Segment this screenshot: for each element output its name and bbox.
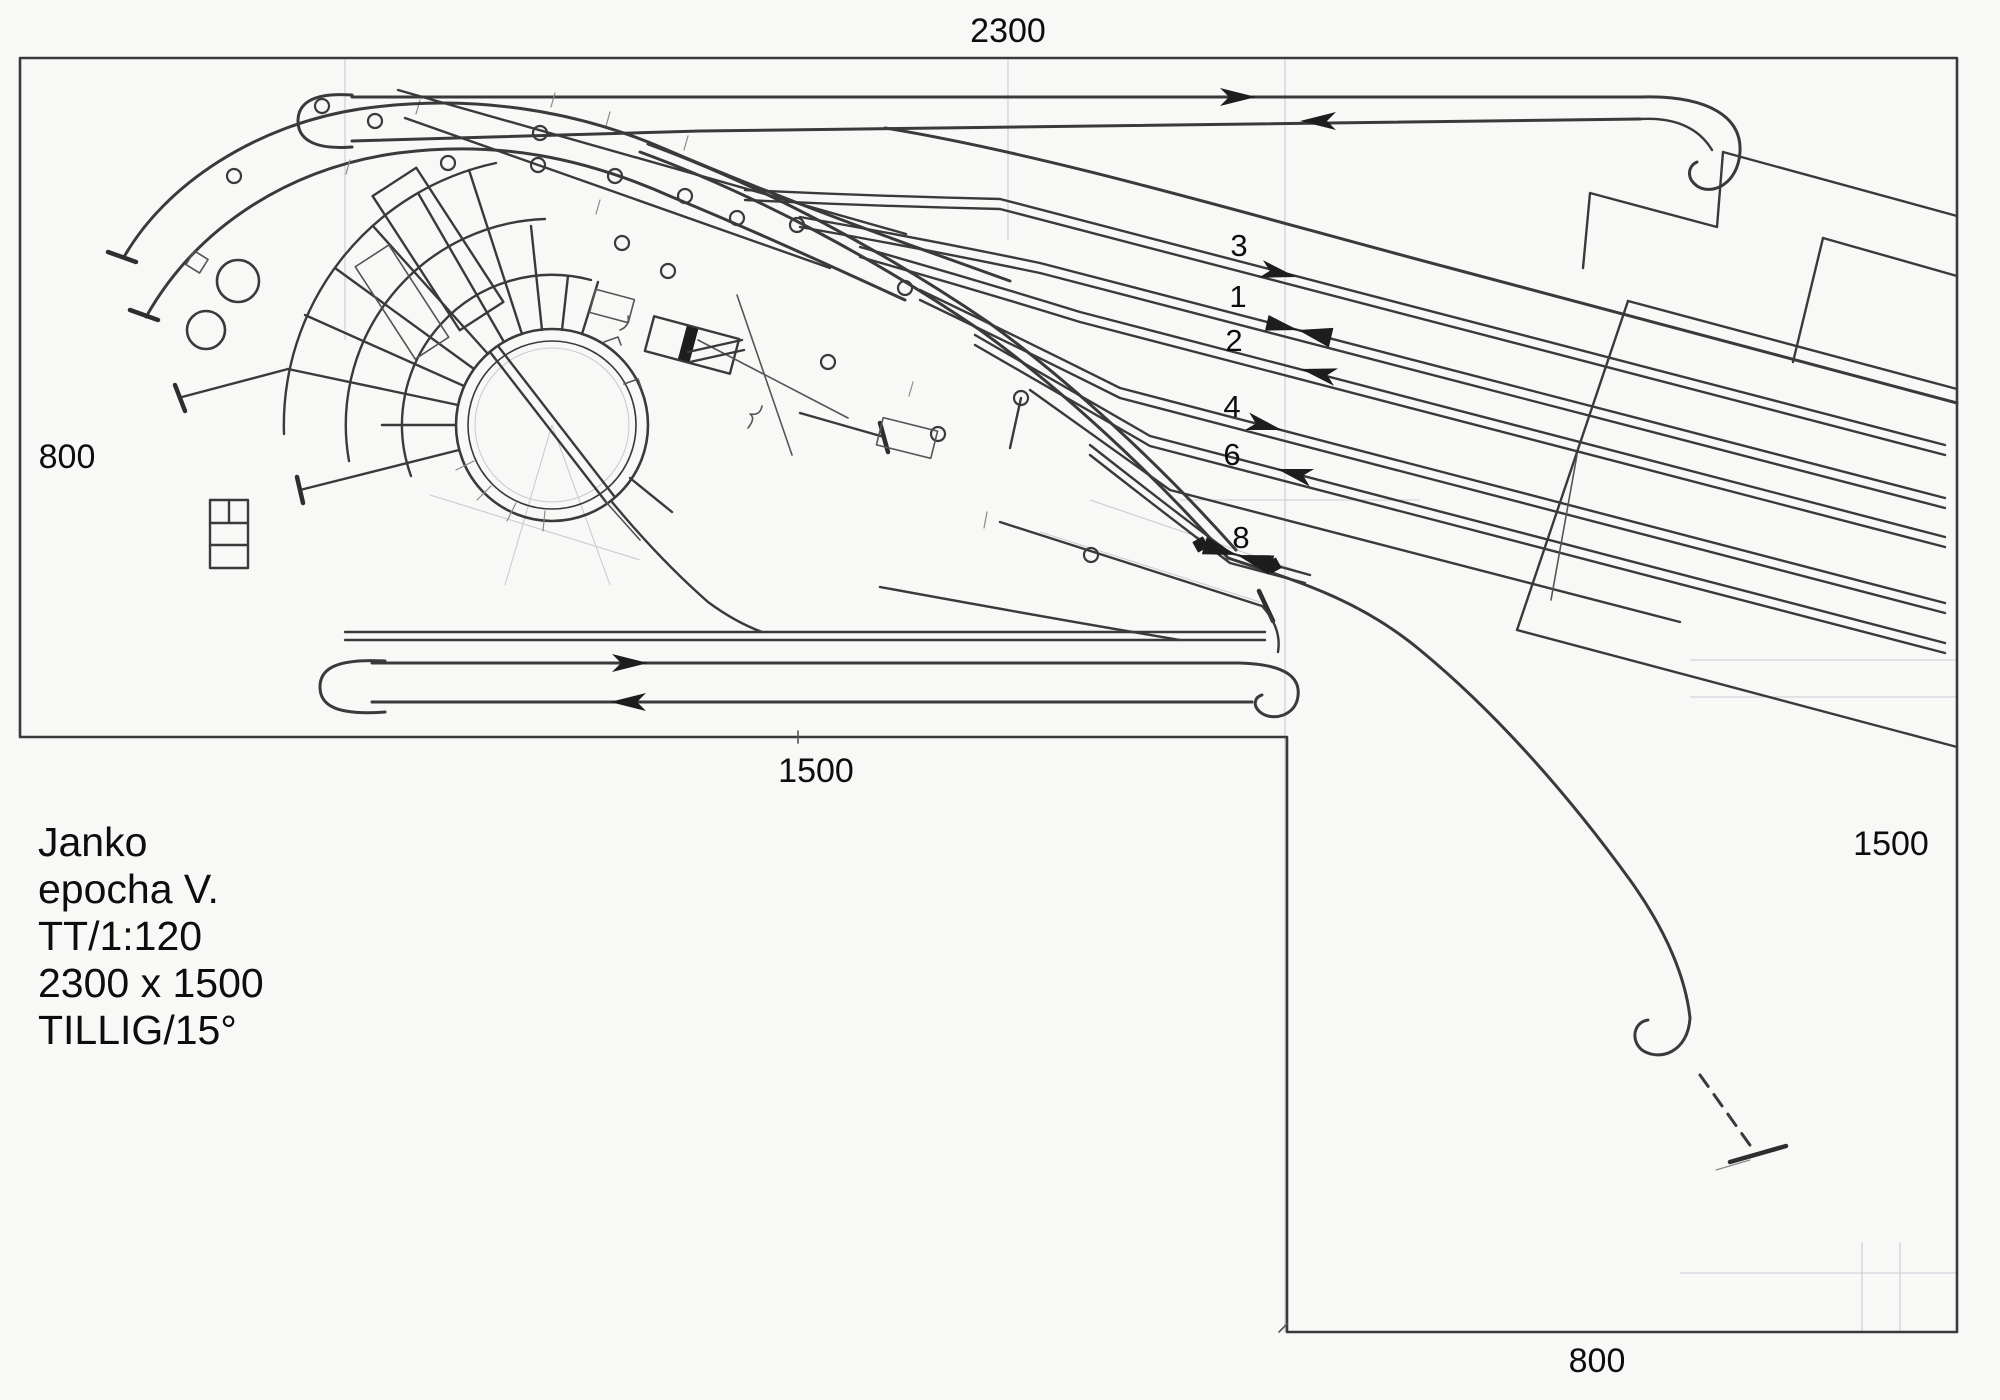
track-number-4: 4 <box>1223 389 1240 424</box>
dimension-bottom-outer: 800 <box>1569 1342 1626 1380</box>
hidden-track-dashed <box>1700 1075 1752 1148</box>
short-siding-with-buffer <box>800 413 888 452</box>
building-a-left-edge <box>1793 238 1823 362</box>
track-number-8: 8 <box>1232 520 1249 555</box>
track-end-bar <box>130 310 158 320</box>
title-line-epoch: epocha V. <box>38 866 219 912</box>
track-number-3: 3 <box>1230 228 1247 263</box>
turntable-to-station-link <box>612 502 762 632</box>
dimension-left: 800 <box>39 438 96 476</box>
track-plan-drawing: 2300 800 1500 1500 800 3 1 2 4 6 8 Janko… <box>0 0 2000 1400</box>
title-line-scale: TT/1:120 <box>38 913 202 959</box>
building-a-top-edge <box>1823 238 1957 276</box>
dimension-top: 2300 <box>970 12 1046 50</box>
crossing-bar <box>698 340 848 418</box>
top-main-line <box>298 90 1740 268</box>
baseboard-border <box>20 58 1957 1332</box>
fuel-tank-circle <box>187 311 225 349</box>
building-hut <box>210 500 248 568</box>
track-end-bar <box>1730 1146 1786 1162</box>
dimension-right: 1500 <box>1853 825 1929 863</box>
track-end-bar <box>175 385 185 411</box>
loading-dock-mark <box>678 326 698 362</box>
yard-track-4 <box>920 290 1945 613</box>
service-area-details <box>186 251 259 568</box>
title-line-name: Janko <box>38 819 147 865</box>
scanned-track-plan-page: 2300 800 1500 1500 800 3 1 2 4 6 8 Janko… <box>0 0 2000 1400</box>
branch-to-lower-leg <box>1228 558 1786 1170</box>
staging-wedge <box>1583 152 1957 268</box>
bowtie-arrow-icon <box>1265 313 1334 347</box>
crossing-diagonal <box>398 90 906 234</box>
arrow-left-icon <box>1299 360 1338 386</box>
track-end-bar <box>297 477 303 503</box>
bottom-station-tracks <box>320 502 1298 717</box>
yard-track-3 <box>745 190 1945 455</box>
arrow-left-icon <box>1300 112 1336 130</box>
title-block: Janko epocha V. TT/1:120 2300 x 1500 TIL… <box>38 819 264 1053</box>
building-outlines <box>1517 152 1957 747</box>
yard-tracks <box>745 128 1957 653</box>
left-return-loop-hook <box>320 661 385 713</box>
dimension-bottom-inner: 1500 <box>778 752 854 790</box>
title-line-size: 2300 x 1500 <box>38 960 264 1006</box>
loop-hook <box>1635 1018 1690 1055</box>
throat-details <box>590 289 938 458</box>
title-line-system: TILLIG/15° <box>38 1007 237 1053</box>
turntable <box>456 329 648 540</box>
track-number-6: 6 <box>1223 437 1240 472</box>
small-hut <box>186 251 208 273</box>
track-end-bar <box>108 252 136 262</box>
track-number-1: 1 <box>1229 279 1246 314</box>
right-loop-hook <box>1640 97 1740 190</box>
yard-track-middle <box>1030 390 1680 622</box>
track-number-2: 2 <box>1225 323 1242 358</box>
right-return-loop-hook <box>1238 663 1298 717</box>
fuel-tank-circle <box>217 260 259 302</box>
